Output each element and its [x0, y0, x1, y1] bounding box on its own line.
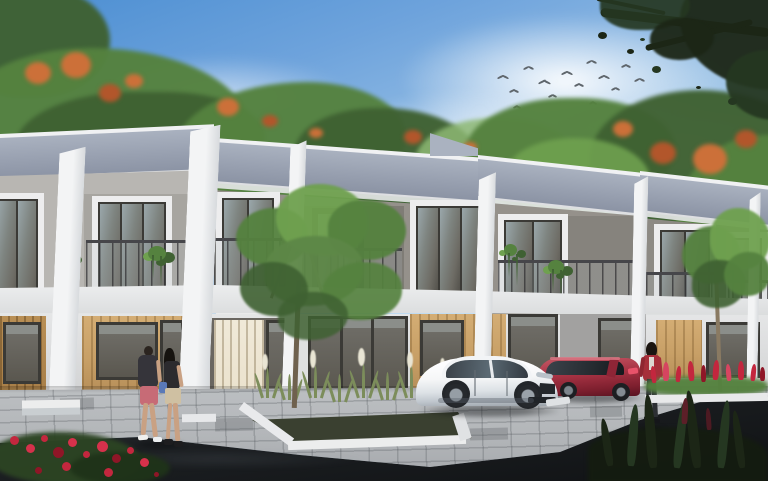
rose-bush [0, 418, 180, 481]
door-line [506, 371, 508, 396]
front-grille [538, 383, 555, 394]
celosia-spike [650, 366, 657, 383]
balcony-vine [504, 244, 517, 256]
foreground-shrubs [588, 388, 768, 481]
balcony-vine [148, 246, 166, 261]
white-sedan [416, 342, 562, 422]
rose-flowers [10, 436, 19, 445]
grass-tuft [410, 366, 413, 398]
roof-ridge-step [430, 130, 478, 156]
door-line [474, 370, 476, 396]
architectural-rendering [0, 0, 768, 481]
woman-shorts [165, 388, 181, 404]
celosia-spike [725, 364, 731, 381]
car-glass [446, 360, 528, 378]
man-arm [156, 360, 162, 382]
celosia-spike [687, 361, 694, 381]
ground-window [3, 322, 41, 384]
window-pane [440, 208, 460, 296]
ornamental-tree [210, 170, 410, 415]
celosia-spike [738, 361, 744, 380]
man-shorts [140, 386, 158, 405]
branch-overhang [540, 0, 768, 130]
window-pane [418, 208, 438, 296]
tree-canopy [724, 252, 768, 296]
branch-leaf-dots [598, 32, 607, 39]
tree-canopy [278, 292, 348, 340]
car-shadow [420, 404, 558, 418]
fin-base-step [22, 407, 80, 415]
celosia-spike [663, 362, 669, 381]
celosia-spike [701, 365, 706, 382]
balcony-vine [548, 260, 564, 274]
rose-foliage [70, 452, 170, 481]
dark-red-spike [705, 408, 712, 430]
man-torso [138, 355, 158, 387]
wheel [517, 385, 539, 407]
side-skirt-shadow [438, 398, 534, 403]
celosia-spike [760, 367, 765, 381]
